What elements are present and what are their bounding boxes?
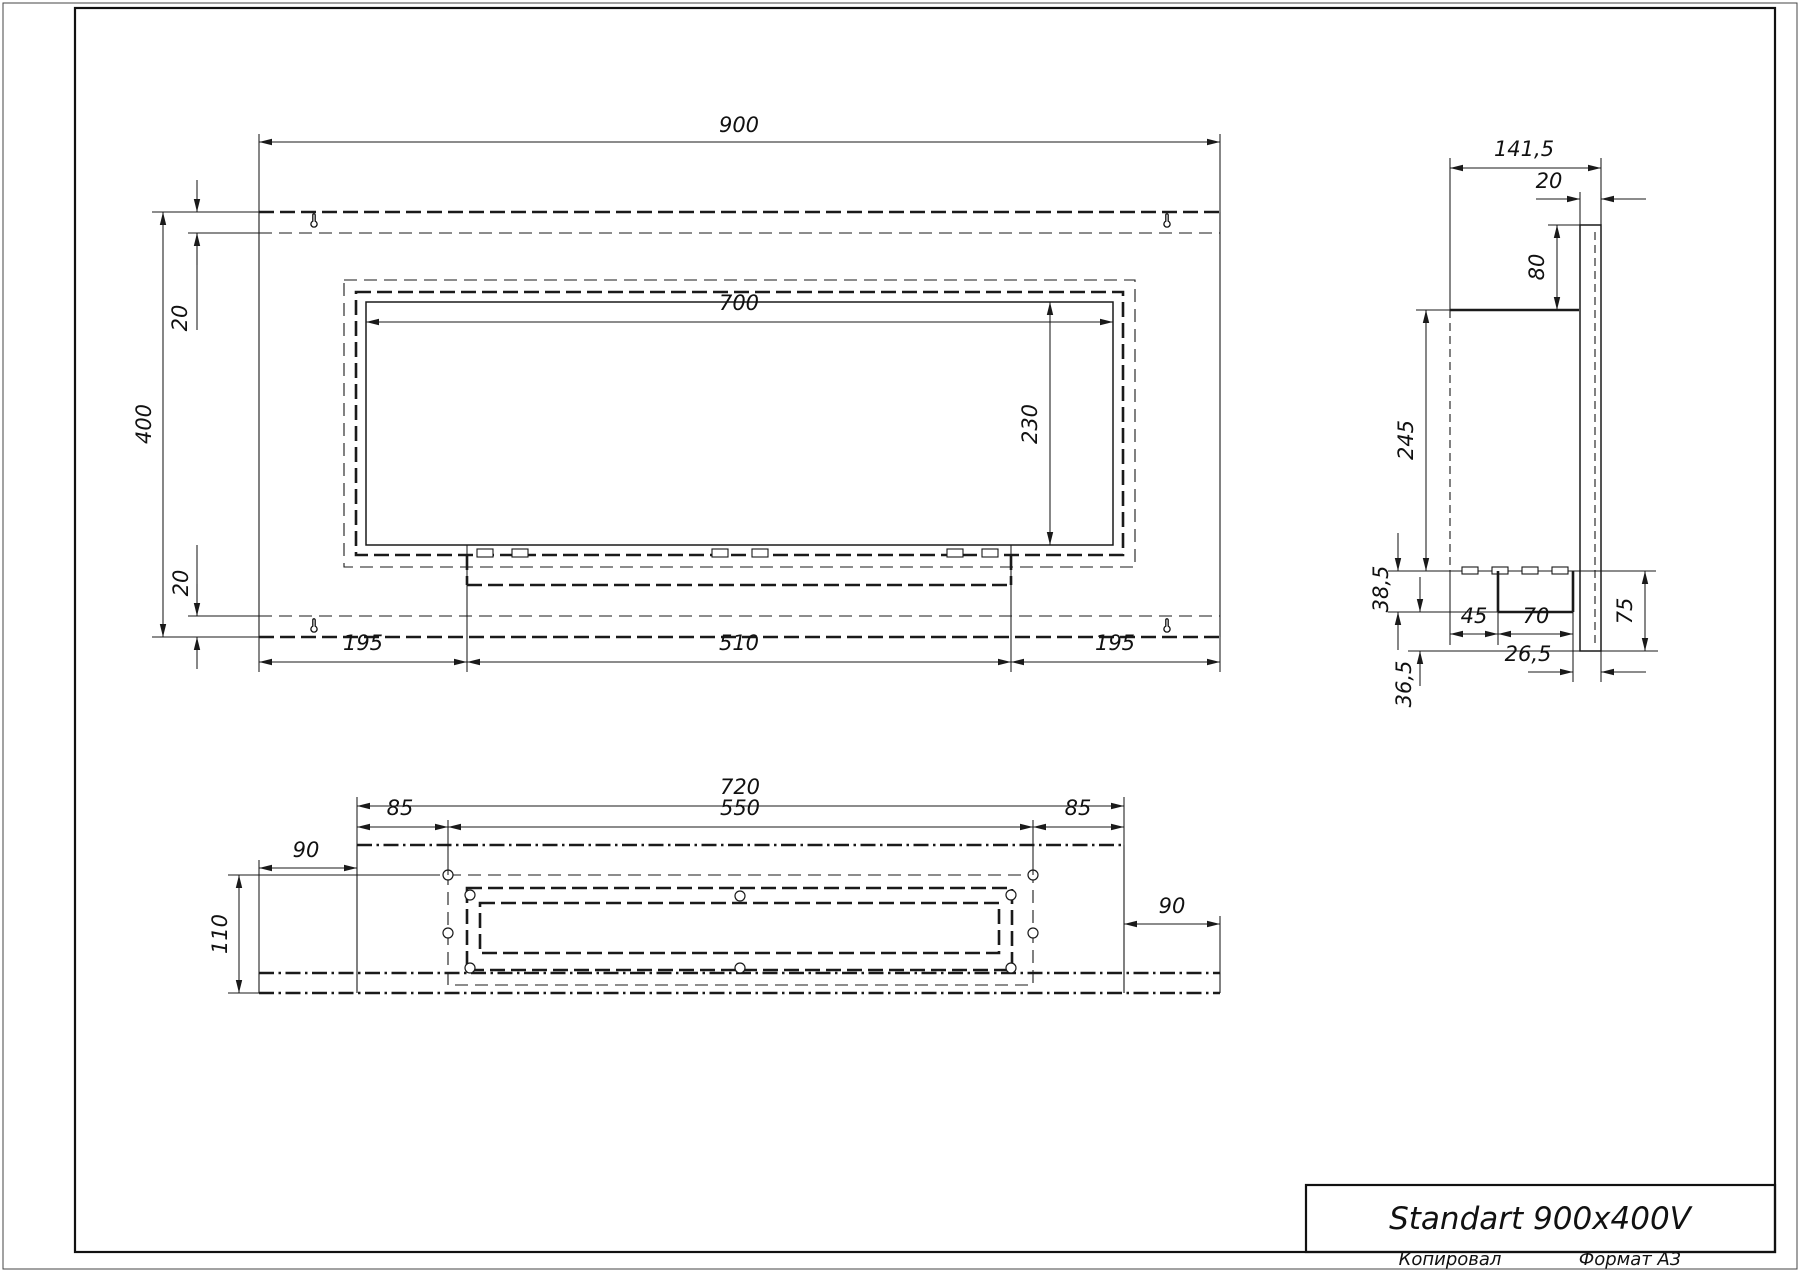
- dim-front-burner-width: 510: [719, 631, 759, 655]
- dim-plan-right-edge: 85: [1065, 796, 1092, 820]
- footer-format: Формат А3: [1579, 1249, 1682, 1270]
- plan-screw-holes: [443, 870, 1038, 973]
- dim-side-back-clearance: 26,5: [1505, 642, 1552, 666]
- plan-dimension-labels: 720 85 550 85 90 110 90: [208, 775, 1185, 954]
- dim-side-tray-width: 70: [1523, 604, 1550, 628]
- dim-side-bottom-overhang: 36,5: [1392, 661, 1416, 708]
- dim-side-bracket-overhang: 80: [1525, 254, 1549, 281]
- front-window-opening: [344, 280, 1135, 567]
- dim-front-right-offset: 195: [1095, 631, 1135, 655]
- front-dimension-labels: 900 400 20 20 700 230 195 510 195: [132, 113, 1135, 655]
- dim-side-tray-height: 38,5: [1369, 566, 1393, 613]
- front-view: 900 400 20 20 700 230 195 510 195: [132, 113, 1220, 672]
- front-outline: [259, 212, 1220, 637]
- dim-front-top-inset: 20: [168, 305, 192, 332]
- keyhole-slot-icon: [1164, 214, 1170, 227]
- side-dimension-labels: 141,5 20 80 245 38,5 36,5 75 45 70 26,5: [1369, 137, 1637, 707]
- keyhole-slot-icon: [311, 619, 317, 632]
- dim-front-opening-width: 700: [719, 291, 759, 315]
- dim-front-left-offset: 195: [343, 631, 383, 655]
- dim-front-overall-width: 900: [719, 113, 759, 137]
- side-outline: [1450, 225, 1601, 651]
- dim-plan-body-depth: 110: [208, 914, 232, 954]
- dim-side-body-height: 245: [1394, 420, 1418, 460]
- drawing-sheet: 900 400 20 20 700 230 195 510 195: [0, 0, 1800, 1273]
- dim-side-lower-height: 75: [1613, 598, 1637, 625]
- footer-copied-by: Копировал: [1399, 1249, 1502, 1270]
- dim-side-overall-depth: 141,5: [1494, 137, 1554, 161]
- dim-plan-flange-right: 90: [1159, 894, 1186, 918]
- dim-plan-flange-left: 90: [293, 838, 320, 862]
- dim-plan-left-edge: 85: [387, 796, 414, 820]
- dim-front-bottom-inset: 20: [169, 570, 193, 597]
- plan-dimension-lines: [228, 797, 1220, 993]
- title-block: Standart 900x400V: [1306, 1185, 1775, 1252]
- dim-plan-cutout-width: 550: [720, 796, 760, 820]
- dim-side-bracket-thickness: 20: [1536, 169, 1563, 193]
- side-view: 141,5 20 80 245 38,5 36,5 75 45 70 26,5: [1369, 137, 1658, 707]
- keyhole-slot-icon: [311, 214, 317, 227]
- title-block-model: Standart 900x400V: [1389, 1201, 1694, 1237]
- engineering-drawing: 900 400 20 20 700 230 195 510 195: [0, 0, 1800, 1273]
- plan-view: 720 85 550 85 90 110 90: [208, 775, 1220, 993]
- dim-front-overall-height: 400: [132, 404, 156, 444]
- dim-front-opening-height: 230: [1018, 404, 1042, 444]
- keyhole-slot-icon: [1164, 619, 1170, 632]
- dim-side-tray-offset: 45: [1461, 604, 1488, 628]
